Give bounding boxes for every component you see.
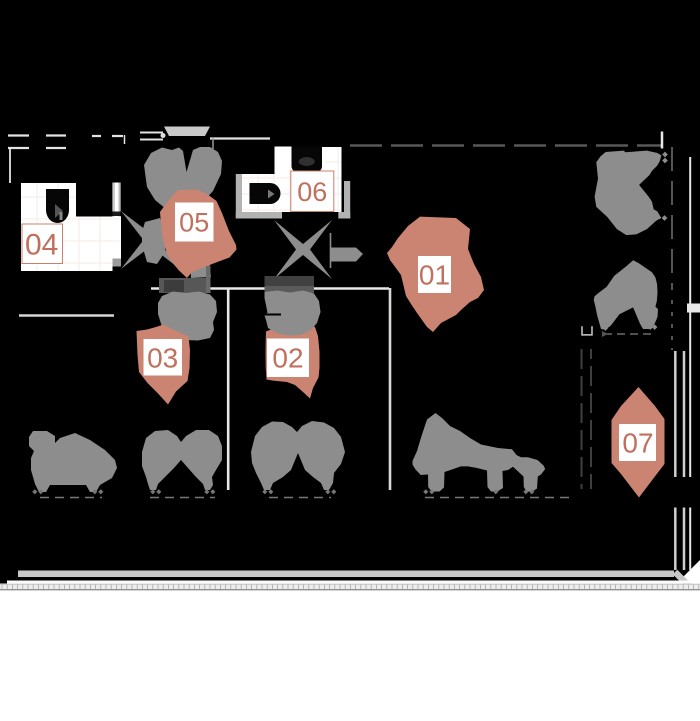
svg-text:02: 02 [272, 343, 303, 374]
svg-text:06: 06 [297, 177, 327, 207]
svg-text:01: 01 [419, 260, 450, 291]
svg-text:07: 07 [622, 428, 653, 459]
svg-text:03: 03 [147, 343, 178, 374]
svg-text:05: 05 [179, 208, 209, 238]
svg-text:04: 04 [25, 229, 58, 262]
